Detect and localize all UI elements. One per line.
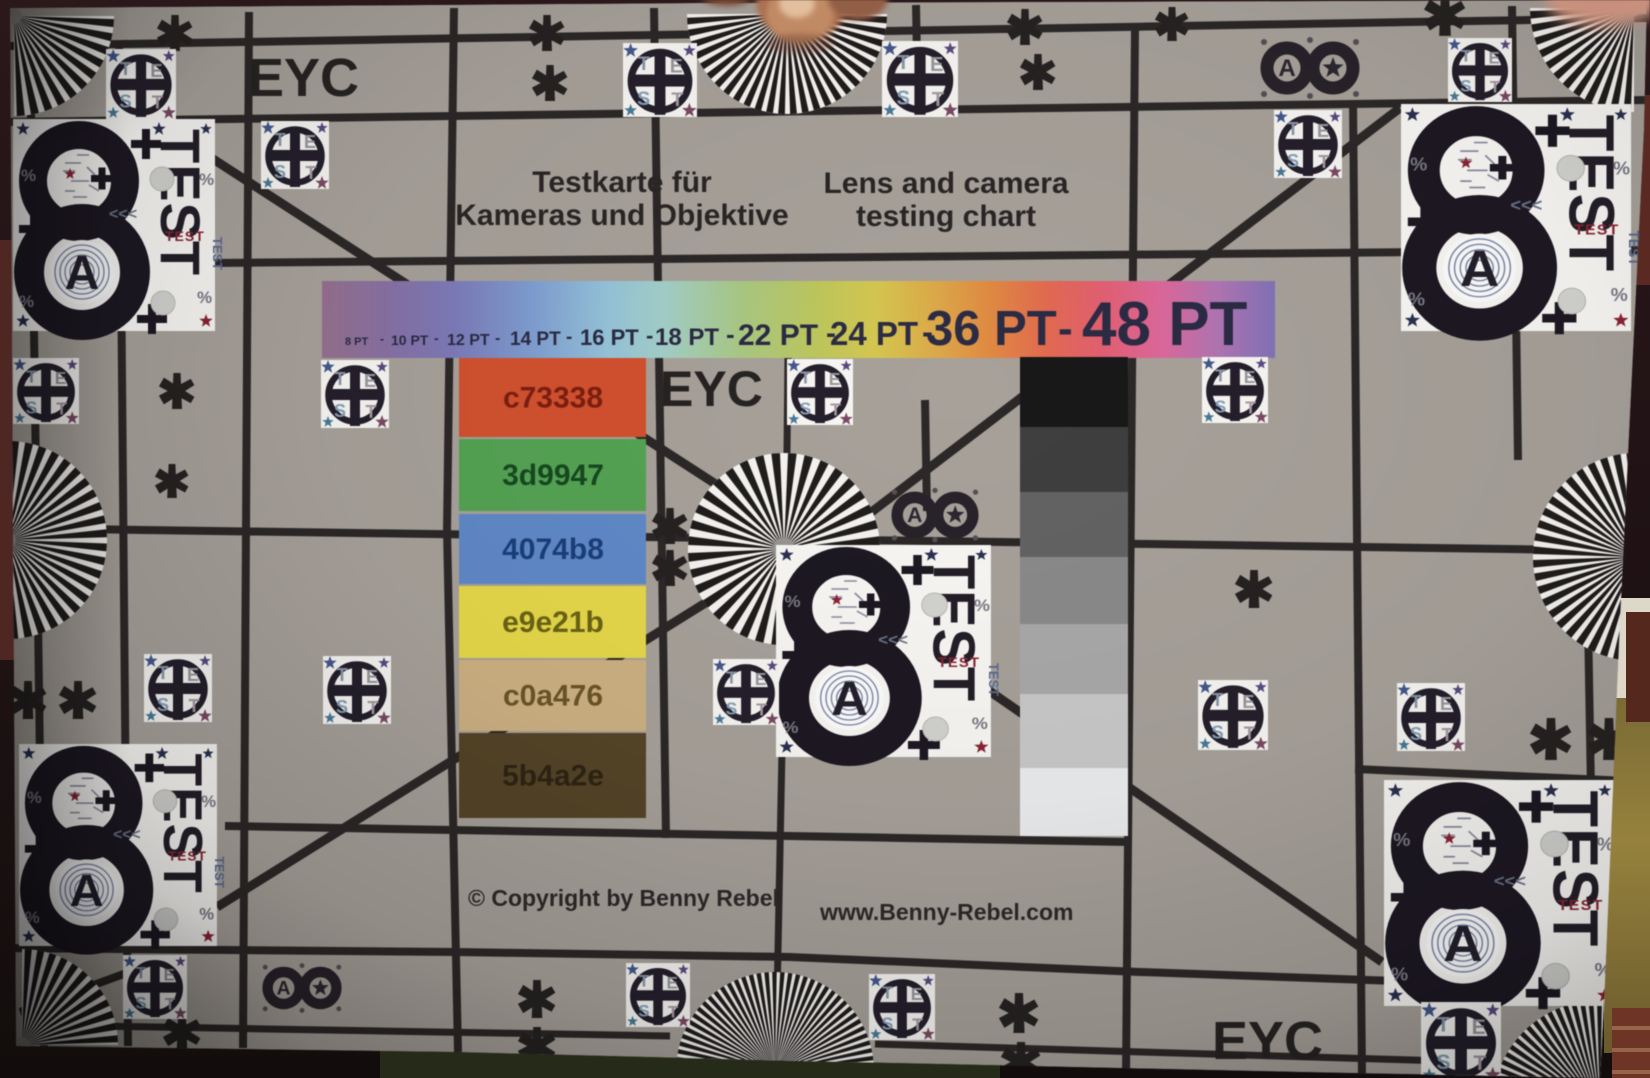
svg-text:TEST: TEST: [1609, 906, 1626, 942]
